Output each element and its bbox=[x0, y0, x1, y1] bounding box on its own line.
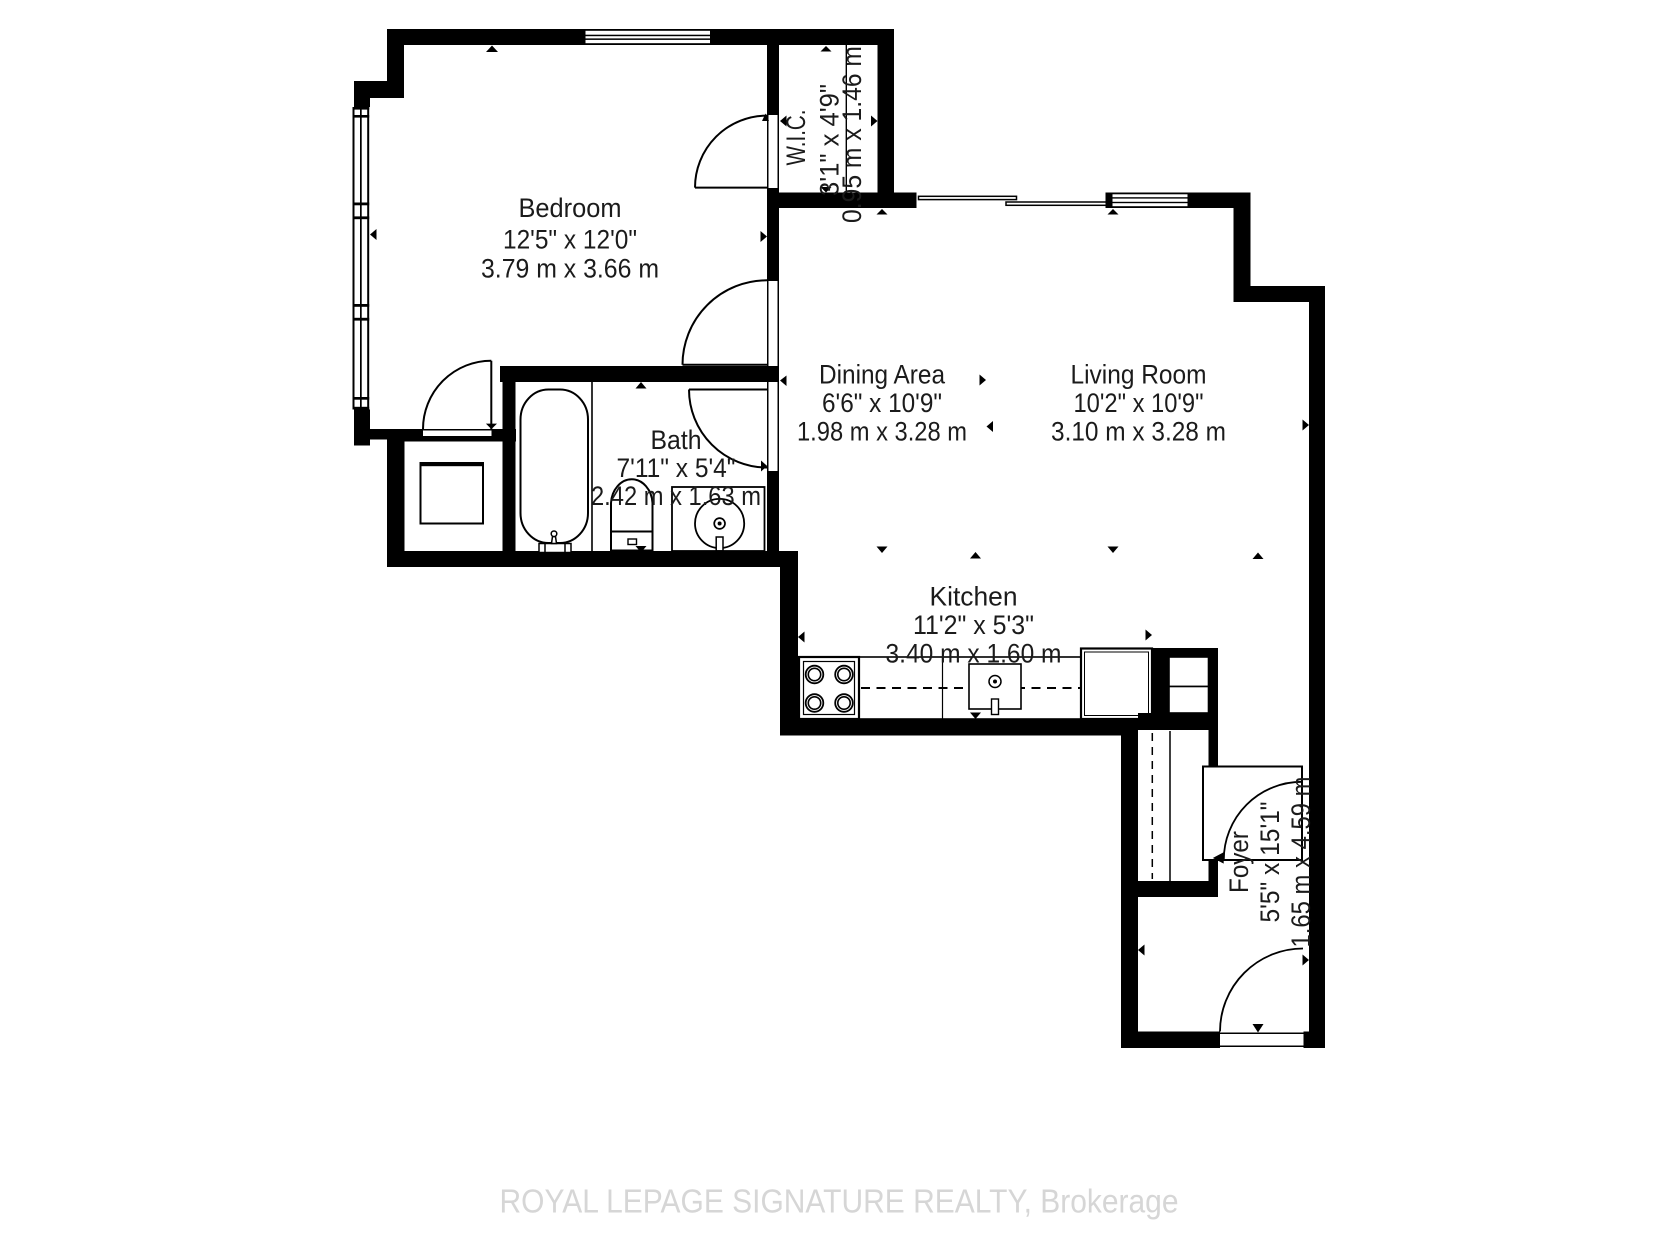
svg-text:W.I.C.: W.I.C. bbox=[781, 110, 811, 166]
svg-text:Living Room: Living Room bbox=[1071, 360, 1207, 390]
svg-text:1.65 m x 4.59 m: 1.65 m x 4.59 m bbox=[1286, 777, 1316, 948]
svg-text:10'2" x 10'9": 10'2" x 10'9" bbox=[1074, 388, 1204, 418]
svg-text:3.10 m x 3.28 m: 3.10 m x 3.28 m bbox=[1051, 417, 1226, 447]
svg-text:7'11" x 5'4": 7'11" x 5'4" bbox=[617, 453, 736, 483]
svg-text:Kitchen: Kitchen bbox=[930, 582, 1018, 612]
svg-text:11'2" x 5'3": 11'2" x 5'3" bbox=[913, 610, 1034, 640]
svg-text:3.40 m x 1.60 m: 3.40 m x 1.60 m bbox=[886, 639, 1062, 669]
svg-text:Dining Area: Dining Area bbox=[819, 360, 946, 390]
svg-text:6'6" x 10'9": 6'6" x 10'9" bbox=[822, 388, 942, 418]
svg-text:ROYAL LEPAGE SIGNATURE REALTY,: ROYAL LEPAGE SIGNATURE REALTY, Brokerage bbox=[500, 1183, 1179, 1220]
svg-text:3.79 m x 3.66 m: 3.79 m x 3.66 m bbox=[481, 254, 659, 284]
svg-text:Foyer: Foyer bbox=[1224, 831, 1254, 893]
svg-text:Bath: Bath bbox=[651, 425, 702, 455]
svg-text:Bedroom: Bedroom bbox=[519, 193, 622, 223]
svg-text:5'5" x 15'1": 5'5" x 15'1" bbox=[1255, 802, 1285, 923]
svg-text:2.42 m x 1.63 m: 2.42 m x 1.63 m bbox=[591, 481, 761, 511]
svg-text:1.98 m x 3.28 m: 1.98 m x 3.28 m bbox=[797, 417, 967, 447]
svg-text:0.95 m x 1.46 m: 0.95 m x 1.46 m bbox=[837, 46, 867, 223]
svg-text:12'5" x 12'0": 12'5" x 12'0" bbox=[503, 225, 637, 255]
